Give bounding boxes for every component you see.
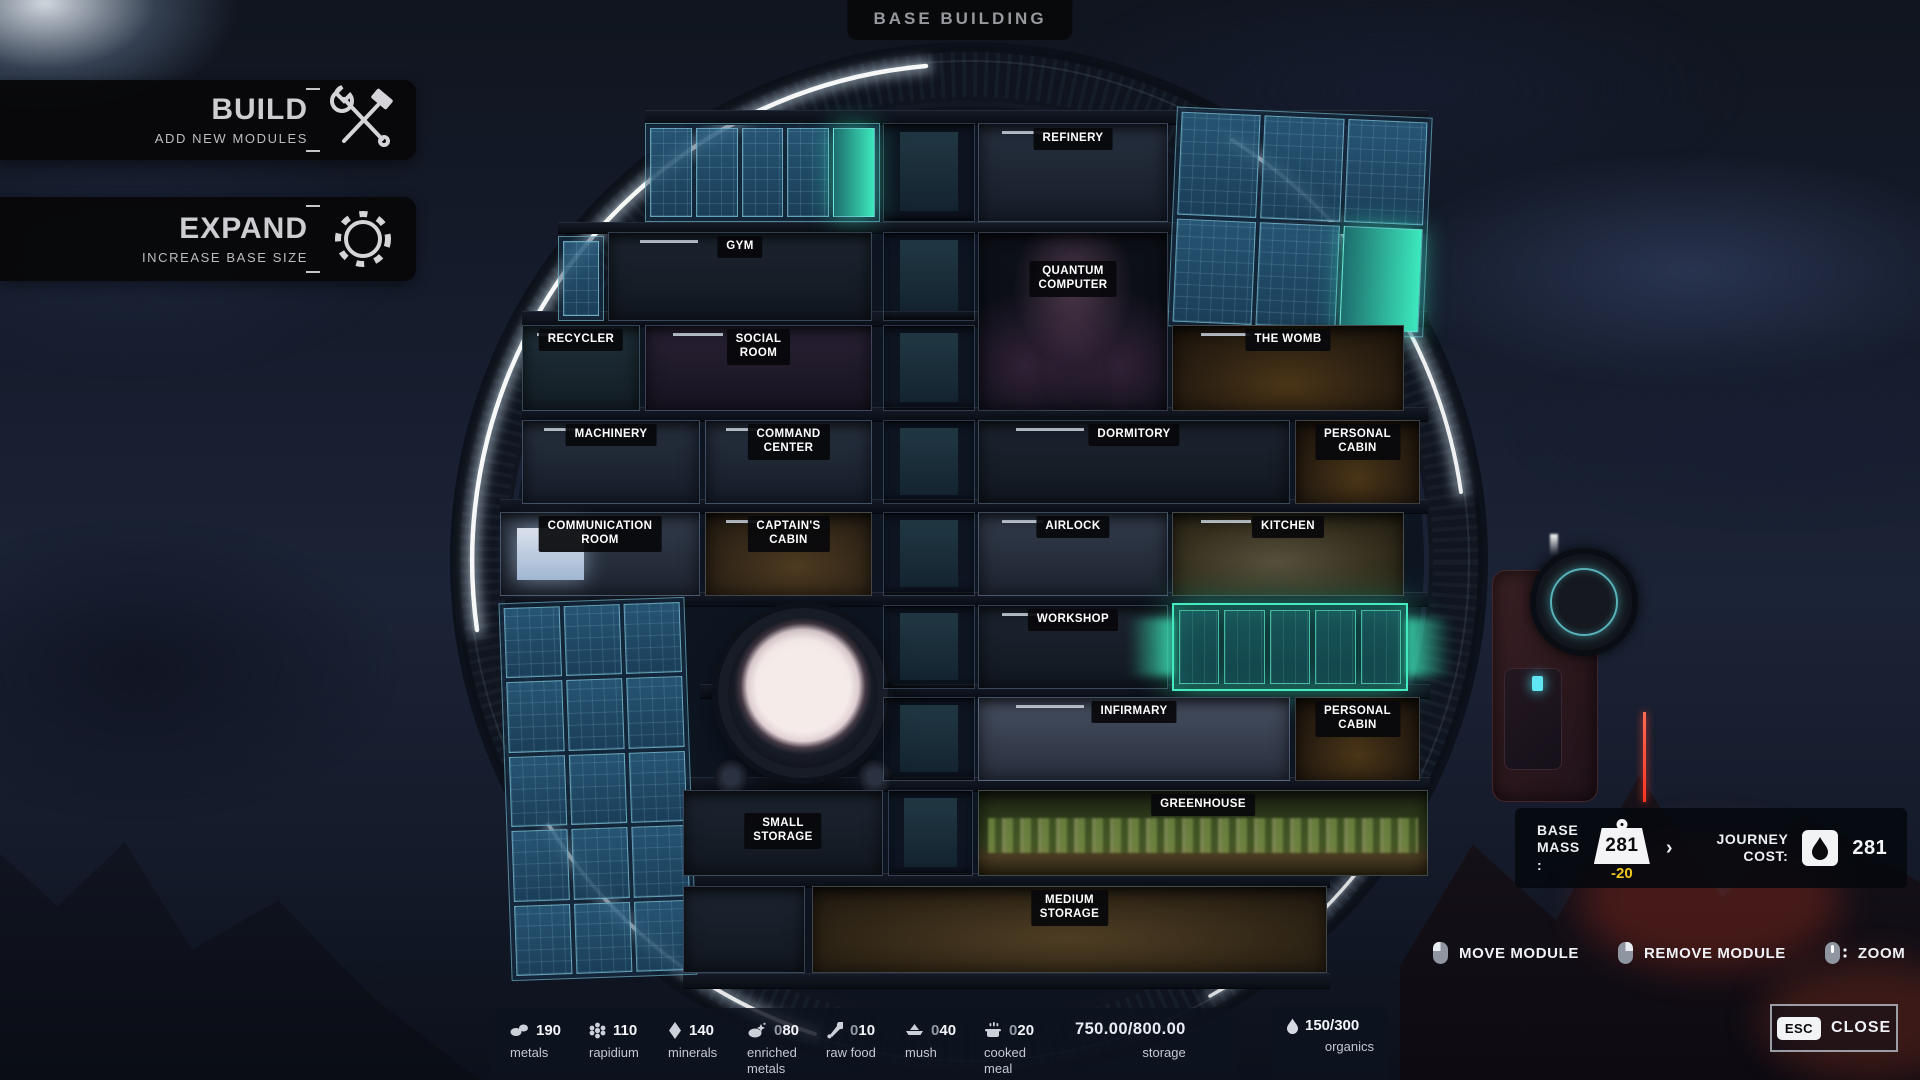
solar-cell — [626, 676, 684, 748]
lens-ring — [1550, 568, 1618, 636]
expand-button[interactable]: EXPAND INCREASE BASE SIZE — [0, 197, 416, 281]
mush-icon — [905, 1023, 924, 1037]
cooked-meal-icon — [984, 1022, 1002, 1039]
storage-summary: 750.00/800.00 storage — [1075, 1020, 1186, 1060]
solar-cell — [787, 128, 829, 217]
module-command-center[interactable]: COMMAND CENTER — [705, 420, 872, 504]
engine-porthole — [718, 608, 888, 778]
module-label: MEDIUM STORAGE — [1031, 890, 1108, 926]
mass-delta: -20 — [1611, 865, 1633, 882]
module-kitchen[interactable]: KITCHEN — [1172, 512, 1404, 596]
solar-cell — [511, 829, 569, 901]
module-label: COMMUNICATION ROOM — [539, 516, 662, 552]
controls-legend: MOVE MODULE REMOVE MODULE ZOOM — [1432, 941, 1905, 965]
expand-label: EXPAND — [142, 213, 308, 245]
module-label: DORMITORY — [1088, 424, 1179, 446]
weight-plate: 281 — [1594, 828, 1650, 864]
expand-sublabel: INCREASE BASE SIZE — [142, 250, 308, 265]
chevron-right-icon: › — [1666, 837, 1673, 860]
organics-value: 150/300 — [1305, 1017, 1359, 1034]
journey-cost-label: JOURNEY COST: — [1717, 831, 1789, 866]
slot-cell — [1224, 610, 1264, 684]
module-recycler[interactable]: RECYCLER — [522, 325, 640, 411]
solar-cell — [631, 825, 689, 897]
module-label: KITCHEN — [1252, 516, 1324, 538]
zoom-hint: ZOOM — [1824, 941, 1905, 965]
module-personal-cabin[interactable]: PERSONAL CABIN — [1295, 420, 1420, 504]
elevator-shaft — [883, 232, 975, 321]
module-refinery[interactable]: REFINERY — [978, 123, 1168, 222]
solar-cell — [571, 827, 629, 899]
solar-array-right — [1167, 107, 1432, 338]
raw-food-icon — [826, 1022, 843, 1039]
remove-module-label: REMOVE MODULE — [1644, 945, 1786, 962]
build-button[interactable]: BUILD ADD NEW MODULES — [0, 80, 416, 160]
solar-array-top — [645, 123, 880, 222]
storage-value: 750.00/800.00 — [1075, 1020, 1186, 1039]
solar-cell — [1173, 219, 1257, 325]
close-button[interactable]: ESC CLOSE — [1770, 1004, 1898, 1052]
module-label: INFIRMARY — [1091, 701, 1176, 723]
solar-cell — [1177, 112, 1261, 218]
module-airlock[interactable]: AIRLOCK — [978, 512, 1168, 596]
page-title: BASE BUILDING — [873, 9, 1046, 28]
build-sublabel: ADD NEW MODULES — [155, 131, 308, 146]
module-dormitory[interactable]: DORMITORY — [978, 420, 1290, 504]
solar-cell — [696, 128, 738, 217]
module-label: WORKSHOP — [1028, 609, 1118, 631]
module-pods — [683, 886, 805, 973]
solar-cell — [1260, 115, 1344, 221]
elevator-shaft — [883, 420, 975, 504]
module-label: QUANTUM COMPUTER — [1029, 261, 1116, 297]
solar-cell — [504, 606, 562, 678]
station-interior: REFINERY GYM QUANTUM COMPUTER RECYCLER S… — [0, 0, 1920, 1080]
floor-slab — [683, 973, 1330, 989]
module-social-room[interactable]: SOCIAL ROOM — [645, 325, 872, 411]
fuel-droplet-icon — [1802, 830, 1838, 866]
solar-panel-small — [558, 236, 604, 321]
rapidium-icon — [589, 1022, 606, 1039]
mouse-right-click-icon — [1617, 941, 1634, 965]
slot-cell — [1270, 610, 1310, 684]
red-laser-beam — [1643, 712, 1646, 802]
mouse-left-click-icon — [1432, 941, 1449, 965]
tick-mark — [306, 205, 320, 207]
solar-cell — [624, 602, 682, 674]
move-module-label: MOVE MODULE — [1459, 945, 1579, 962]
module-label: REFINERY — [1034, 128, 1113, 150]
journey-cost-value: 281 — [1852, 837, 1887, 860]
close-label: CLOSE — [1831, 1019, 1891, 1037]
elevator-shaft — [883, 697, 975, 781]
metals-icon — [510, 1023, 529, 1037]
module-label: GREENHOUSE — [1151, 794, 1255, 816]
device-lens — [1530, 548, 1638, 656]
move-module-hint: MOVE MODULE — [1432, 941, 1579, 965]
solar-cell — [650, 128, 692, 217]
resource-cooked-meal: 020 cooked meal — [984, 1020, 1036, 1076]
mouse-scroll-icon — [1824, 941, 1848, 965]
module-the-womb[interactable]: THE WOMB — [1172, 325, 1404, 411]
module-label: PERSONAL CABIN — [1315, 424, 1400, 460]
resource-bar: 190 metals 110 rapidium 140 minerals 080… — [490, 1008, 1238, 1080]
module-infirmary[interactable]: INFIRMARY — [978, 697, 1290, 781]
slot-cell — [1315, 610, 1355, 684]
solar-cell — [1256, 222, 1340, 328]
tools-icon — [326, 83, 400, 157]
tick-mark — [306, 88, 320, 90]
remove-module-hint: REMOVE MODULE — [1617, 941, 1786, 965]
solar-cell — [514, 904, 572, 976]
enriched-metals-icon — [747, 1022, 767, 1038]
elevator-shaft — [883, 123, 975, 222]
solar-cell — [509, 755, 567, 827]
module-label: RECYCLER — [539, 329, 623, 351]
resource-raw-food: 010 raw food — [826, 1020, 878, 1061]
elevator-shaft — [883, 512, 975, 596]
resource-rapidium: 110 rapidium — [589, 1020, 641, 1061]
module-label: AIRLOCK — [1036, 516, 1109, 538]
module-medium-storage[interactable]: MEDIUM STORAGE — [812, 886, 1327, 973]
build-label: BUILD — [155, 94, 308, 126]
solar-cell — [566, 678, 624, 750]
module-label: PERSONAL CABIN — [1315, 701, 1400, 737]
module-gym[interactable]: GYM — [608, 232, 872, 321]
module-quantum-computer[interactable]: QUANTUM COMPUTER — [978, 232, 1168, 411]
solar-cell — [629, 751, 687, 823]
module-label: SOCIAL ROOM — [727, 329, 791, 365]
storage-label: storage — [1142, 1045, 1185, 1060]
mass-journey-panel: BASE MASS : 281 -20 › JOURNEY COST: 281 — [1515, 808, 1907, 888]
solar-cell — [574, 902, 632, 974]
resource-metals: 190 metals — [510, 1020, 562, 1061]
solar-cell-lit — [1339, 226, 1423, 332]
elevator-shaft — [883, 605, 975, 689]
elevator-shaft — [888, 790, 973, 876]
tick-mark — [306, 150, 320, 152]
module-personal-cabin-2[interactable]: PERSONAL CABIN — [1295, 697, 1420, 781]
module-communication-room[interactable]: COMMUNICATION ROOM — [500, 512, 700, 596]
resource-mush: 040 mush — [905, 1020, 957, 1061]
zoom-label: ZOOM — [1858, 945, 1905, 962]
module-machinery[interactable]: MACHINERY — [522, 420, 700, 504]
tick-mark — [306, 271, 320, 273]
device-indicator — [1532, 676, 1543, 691]
resource-enriched-metals: 080 enriched metals — [747, 1020, 799, 1076]
elevator-shaft — [883, 325, 975, 411]
module-label: MACHINERY — [566, 424, 657, 446]
solar-cell — [742, 128, 784, 217]
screen-title-box: BASE BUILDING — [847, 0, 1072, 40]
solar-cell — [564, 604, 622, 676]
module-label: THE WOMB — [1245, 329, 1330, 351]
module-captains-cabin[interactable]: CAPTAIN'S CABIN — [705, 512, 872, 596]
organics-droplet-icon — [1286, 1018, 1299, 1034]
base-mass-label: BASE MASS : — [1537, 822, 1580, 875]
expand-gear-icon — [326, 202, 400, 276]
module-label: SMALL STORAGE — [744, 813, 821, 849]
base-mass-value: 281 — [1605, 835, 1638, 857]
solar-cell — [1344, 119, 1428, 225]
esc-key-badge: ESC — [1777, 1017, 1821, 1040]
module-small-storage[interactable]: SMALL STORAGE — [683, 790, 883, 876]
device-light — [1550, 534, 1558, 556]
organics-label: organics — [1286, 1039, 1374, 1054]
module-greenhouse[interactable]: GREENHOUSE — [978, 790, 1428, 876]
expand-text: EXPAND INCREASE BASE SIZE — [142, 213, 308, 266]
module-label: CAPTAIN'S CABIN — [747, 516, 829, 552]
highlighted-module-slot[interactable] — [1172, 603, 1408, 691]
organics-box: 150/300 organics — [1272, 1005, 1388, 1080]
minerals-icon — [668, 1022, 682, 1039]
solar-cell-lit — [833, 128, 875, 217]
resource-minerals: 140 minerals — [668, 1020, 720, 1061]
module-label: GYM — [717, 236, 762, 258]
build-text: BUILD ADD NEW MODULES — [155, 94, 308, 147]
module-label: COMMAND CENTER — [747, 424, 829, 460]
slot-cell — [1361, 610, 1401, 684]
slot-cell — [1179, 610, 1219, 684]
weight-icon: 281 -20 — [1594, 819, 1650, 877]
base-building-screen: REFINERY GYM QUANTUM COMPUTER RECYCLER S… — [0, 0, 1920, 1080]
solar-cell — [563, 241, 599, 316]
solar-array-left-tall — [498, 597, 697, 981]
solar-cell — [506, 681, 564, 753]
solar-cell — [569, 753, 627, 825]
